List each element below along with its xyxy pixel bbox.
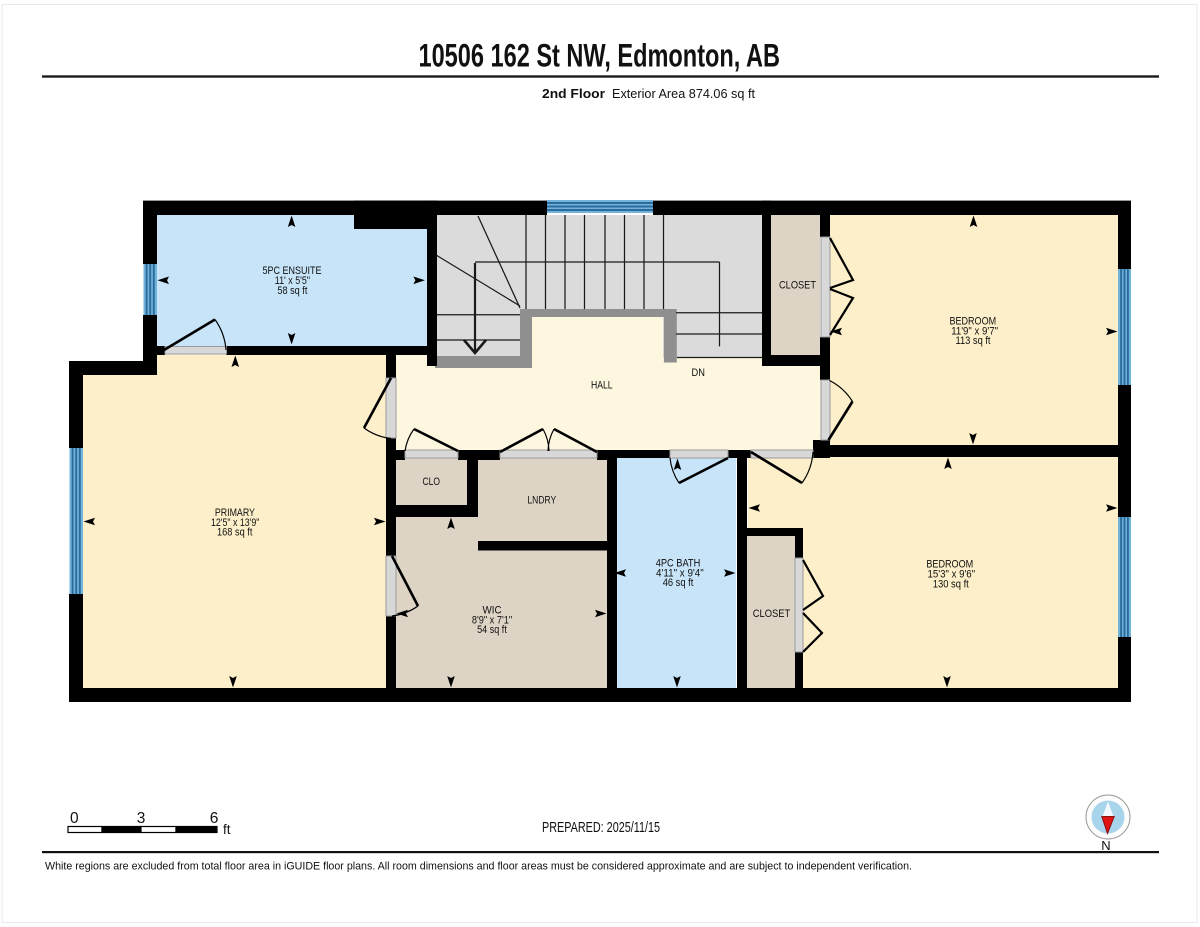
svg-text:2nd Floor: 2nd Floor: [542, 86, 605, 101]
svg-text:PREPARED: 2025/11/15: PREPARED: 2025/11/15: [542, 819, 660, 836]
svg-text:Exterior Area 874.06 sq ft: Exterior Area 874.06 sq ft: [612, 86, 755, 101]
svg-text:N: N: [1101, 838, 1110, 853]
svg-text:54 sq ft: 54 sq ft: [477, 624, 507, 636]
svg-text:CLOSET: CLOSET: [779, 279, 816, 291]
svg-text:168 sq ft: 168 sq ft: [217, 527, 252, 539]
svg-text:58 sq ft: 58 sq ft: [277, 285, 307, 297]
svg-text:6: 6: [210, 810, 219, 827]
svg-text:113 sq ft: 113 sq ft: [956, 335, 991, 347]
svg-text:White regions are excluded fro: White regions are excluded from total fl…: [45, 861, 912, 873]
svg-text:DN: DN: [692, 367, 705, 379]
svg-text:CLO: CLO: [422, 476, 440, 488]
svg-text:CLOSET: CLOSET: [753, 608, 791, 620]
svg-text:130 sq ft: 130 sq ft: [933, 579, 969, 591]
svg-text:HALL: HALL: [591, 380, 613, 392]
svg-text:46 sq ft: 46 sq ft: [663, 577, 694, 589]
svg-text:0: 0: [70, 810, 79, 827]
svg-text:10506 162 St NW, Edmonton, AB: 10506 162 St NW, Edmonton, AB: [419, 38, 781, 74]
svg-text:3: 3: [137, 810, 146, 827]
svg-text:ft: ft: [223, 822, 231, 837]
svg-text:LNDRY: LNDRY: [527, 495, 556, 507]
